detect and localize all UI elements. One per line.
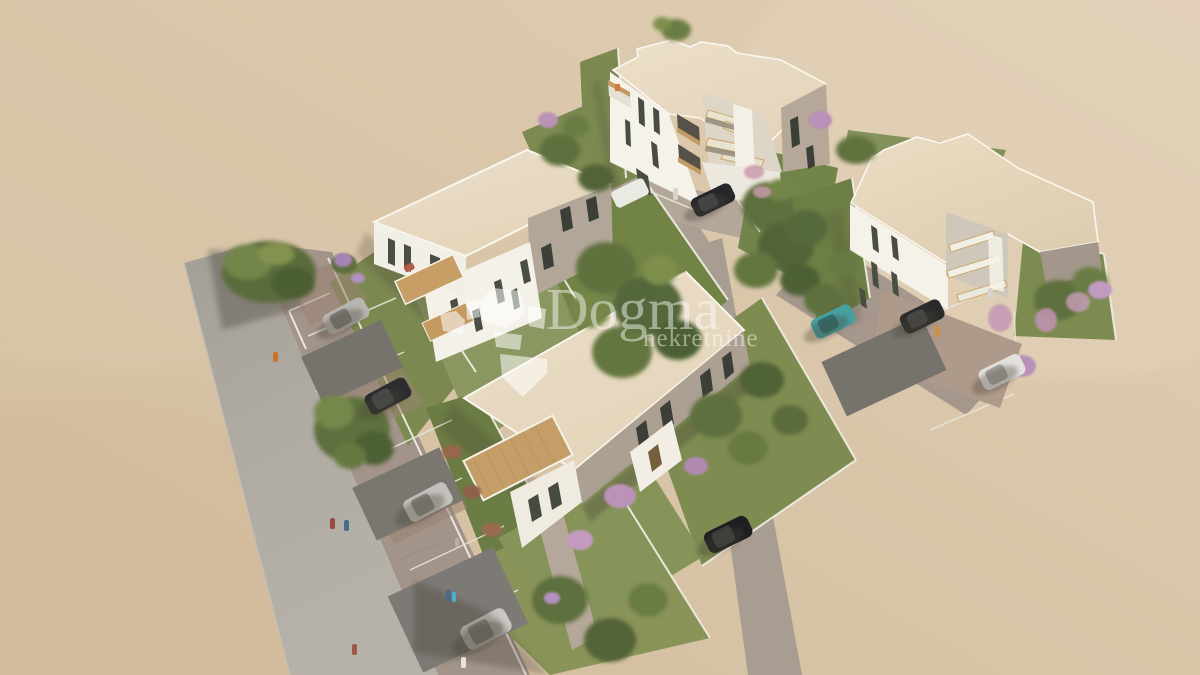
- svg-text:nekretnine: nekretnine: [643, 325, 759, 352]
